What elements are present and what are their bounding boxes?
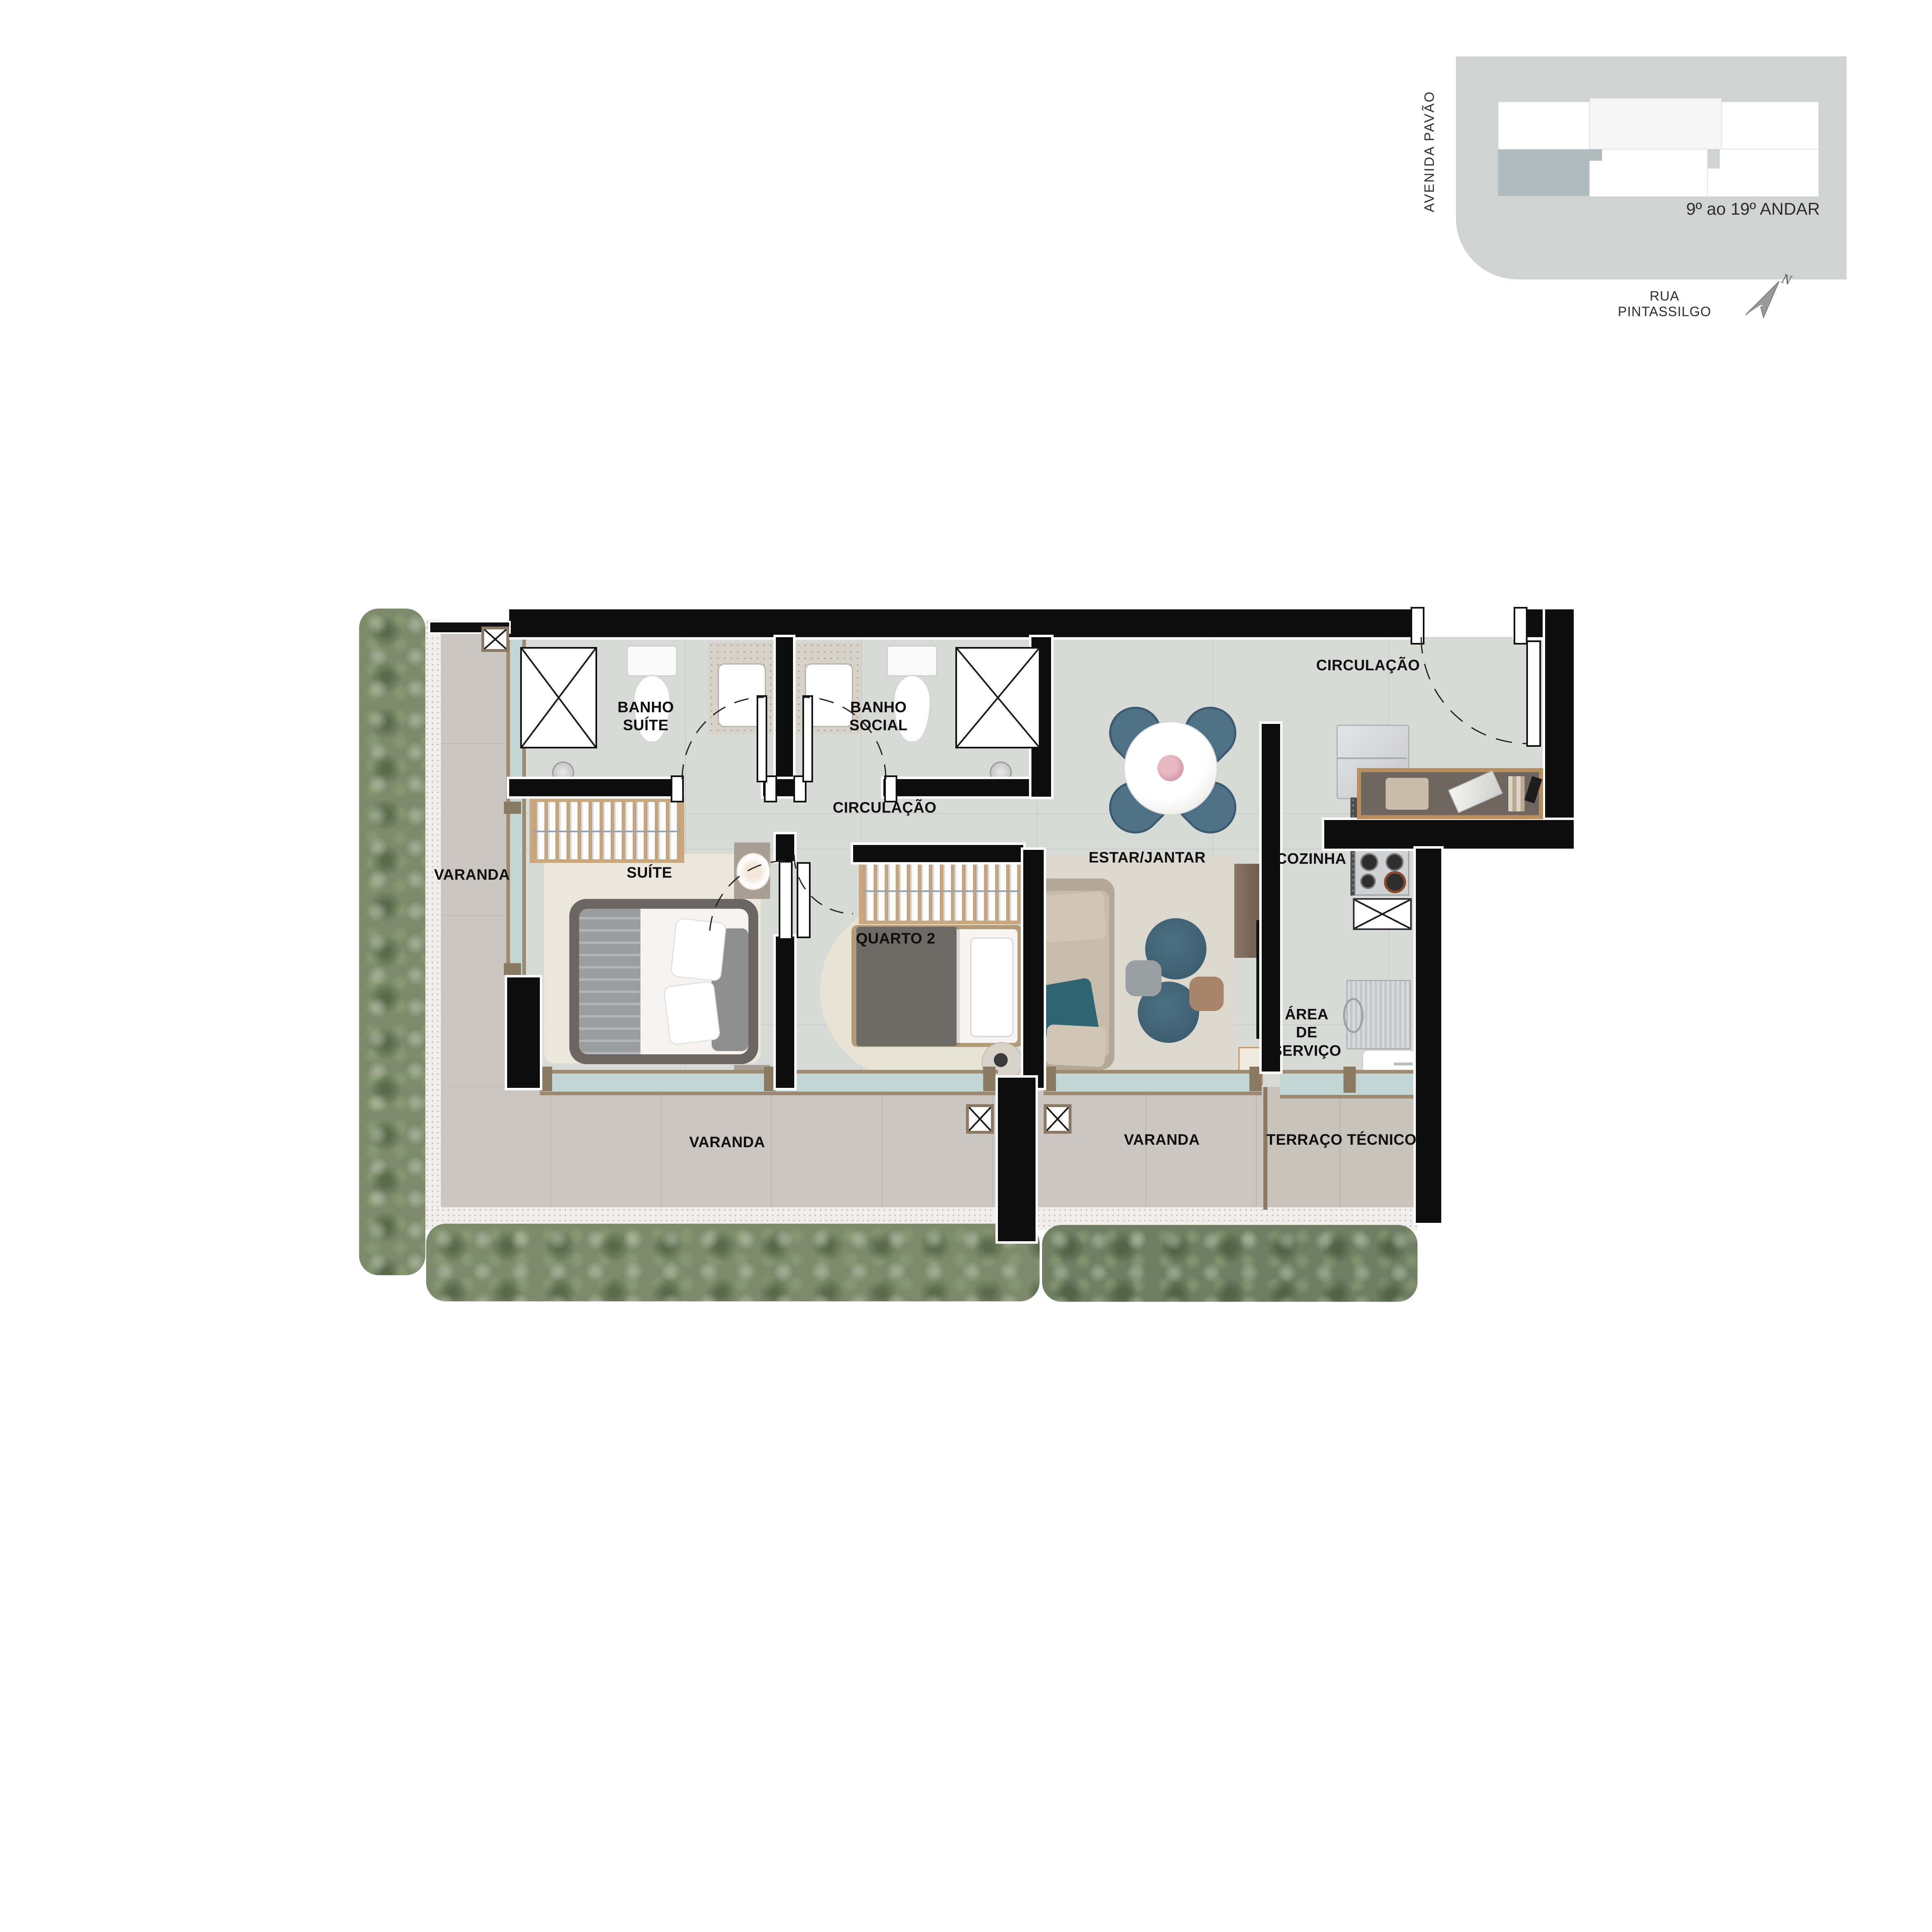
wall-suite-q2-divider-top — [776, 834, 794, 861]
bed-quarto2-pillow — [970, 937, 1013, 1037]
key-plan-floors-label: 9º ao 19º ANDAR — [1648, 199, 1820, 219]
burner-icon — [1360, 853, 1378, 871]
column-xbox-pillar-right — [1044, 1104, 1072, 1134]
label-circulacao-internal: CIRCULAÇÃO — [833, 799, 937, 817]
burner-icon — [1360, 874, 1376, 889]
wall-bath-front-left — [509, 779, 673, 796]
door-jamb — [671, 775, 684, 802]
door-leaf-entry — [1526, 640, 1541, 747]
hedge-left — [359, 609, 425, 1275]
column-xbox-varanda-top — [481, 627, 509, 652]
floorplan-page: 9º ao 19º ANDAR AVENIDA PAVÃO RUA PINTAS… — [0, 0, 1932, 1932]
label-banho-social: BANHO SOCIAL — [849, 699, 908, 735]
window-post — [764, 1067, 776, 1091]
label-banho-suite: BANHO SUÍTE — [618, 699, 674, 735]
label-terraco-tecnico: TERRAÇO TÉCNICO — [1266, 1131, 1416, 1149]
wall-bath-divider — [776, 637, 793, 780]
door-leaf-banho-suite — [757, 695, 767, 782]
window-post — [1044, 1067, 1056, 1091]
wall-suite-q2-divider-bottom — [776, 937, 794, 1088]
bed-suite-pillow-1 — [670, 918, 727, 982]
sideboard-books-decor — [1508, 776, 1525, 811]
wall-quarto2-top — [853, 845, 1023, 862]
window-post — [504, 963, 521, 975]
door-leaf-banho-social — [802, 695, 813, 782]
kitchen-cabinet-xbox — [1353, 898, 1412, 930]
wall-suite-left-segment — [507, 977, 540, 1088]
wall-circulation-bottom — [1324, 820, 1574, 849]
toilet-banho-social — [887, 645, 937, 676]
wall-bath-front-right — [883, 779, 1031, 796]
wardrobe-suite — [530, 798, 684, 863]
label-suite: SUÍTE — [627, 864, 672, 882]
label-varanda-bottom-right: VARANDA — [1124, 1131, 1200, 1149]
fridge-divider — [1337, 757, 1407, 759]
sofa-pillow-beige-top — [1042, 892, 1107, 943]
rua-street-label: RUA PINTASSILGO — [1607, 288, 1722, 319]
window-bottom-estar — [1044, 1070, 1262, 1095]
side-table-wood — [1189, 977, 1224, 1011]
wardrobe-quarto2 — [859, 856, 1024, 924]
tv-screen — [1256, 920, 1260, 1039]
toilet-banho-suite — [627, 645, 677, 676]
burner-icon — [1384, 871, 1406, 893]
pillar-varanda — [998, 1078, 1036, 1241]
column-xbox-pillar-left — [966, 1104, 994, 1134]
laundry-tank-faucet-icon — [1394, 1063, 1413, 1065]
key-plan-unit-highlighted-tab — [1589, 149, 1602, 161]
key-plan-unit-f — [1707, 149, 1819, 197]
label-estar-jantar: ESTAR/JANTAR — [1089, 849, 1206, 867]
door-jamb — [1411, 607, 1424, 645]
key-plan-unit-f-notch — [1707, 149, 1720, 168]
side-table-quarto2-decor — [994, 1053, 1008, 1067]
label-varanda-left: VARANDA — [434, 866, 510, 884]
key-plan-unit-b — [1590, 98, 1721, 149]
lamp-suite — [736, 853, 771, 890]
wall-top-main — [509, 609, 1421, 637]
label-varanda-bottom-left: VARANDA — [689, 1133, 765, 1151]
hedge-bottom-right — [1042, 1225, 1418, 1302]
hedge-bottom-left — [426, 1224, 1040, 1301]
label-circulacao-entry: CIRCULAÇÃO — [1316, 656, 1420, 674]
wall-quarto2-estar-divider — [1023, 850, 1044, 1088]
window-post — [1249, 1067, 1262, 1091]
shower-box-banho-social — [955, 647, 1040, 748]
shower-box-banho-suite — [520, 647, 597, 748]
avenue-street-label: AVENIDA PAVÃO — [1422, 82, 1437, 221]
door-leaf-quarto2 — [797, 862, 811, 938]
door-leaf-suite — [779, 861, 793, 940]
key-plan-unit-e — [1590, 149, 1707, 197]
key-plan-unit-highlighted — [1498, 149, 1589, 196]
key-plan-unit-c — [1721, 102, 1819, 149]
door-jamb — [1514, 607, 1528, 645]
sideboard-box-decor — [1386, 778, 1429, 810]
window-post — [983, 1067, 995, 1091]
sofa-pillow-beige-bottom — [1045, 1024, 1107, 1067]
wall-right-outer — [1545, 609, 1574, 849]
window-post — [540, 1067, 552, 1091]
gravel-strip-left — [425, 620, 441, 1210]
key-plan-unit-a — [1498, 102, 1590, 150]
label-quarto2: QUARTO 2 — [856, 930, 936, 948]
bed-suite-pillow-2 — [663, 981, 721, 1045]
washing-machine-door — [1343, 998, 1364, 1033]
label-cozinha: COZINHA — [1276, 850, 1346, 868]
window-post — [504, 802, 521, 814]
label-area-servico: ÁREA DE SERVIÇO — [1272, 1005, 1341, 1060]
burner-icon — [1386, 853, 1404, 871]
varanda-left-floor — [440, 633, 509, 1088]
bed-suite-blanket — [579, 909, 640, 1054]
dining-table-flowers — [1157, 755, 1184, 781]
side-table-gray — [1126, 960, 1161, 996]
wall-kitchen-right — [1416, 849, 1441, 1223]
window-post — [1343, 1067, 1356, 1093]
